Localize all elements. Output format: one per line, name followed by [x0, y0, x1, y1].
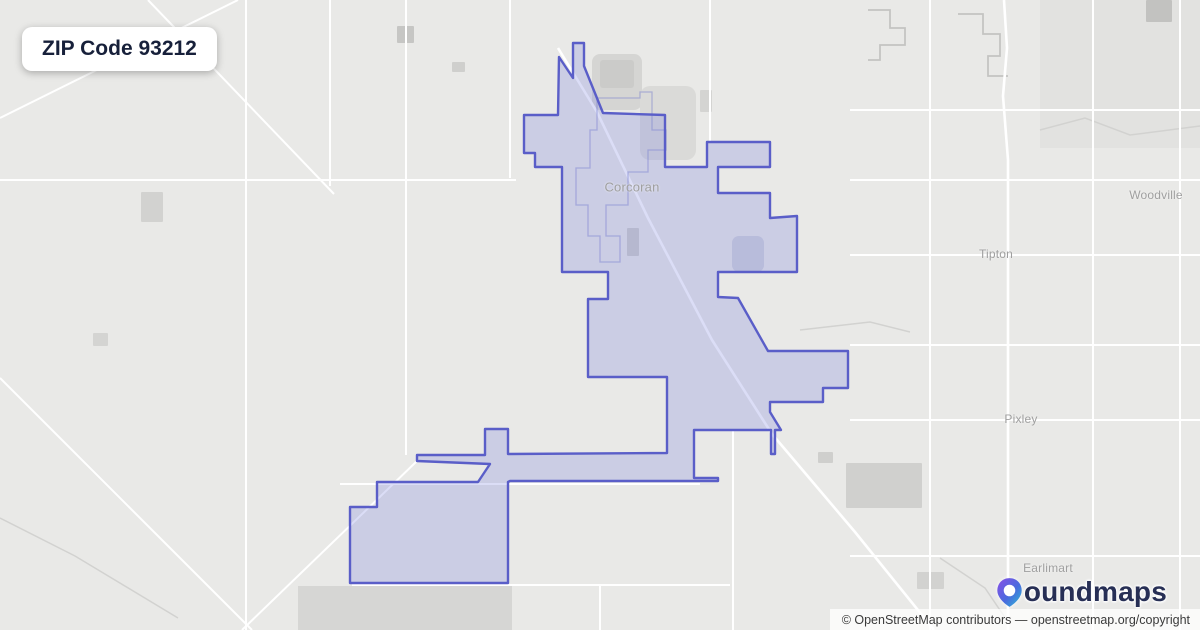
- boundmaps-logo-text: oundmaps: [1024, 576, 1167, 608]
- attribution-bar: © OpenStreetMap contributors — openstree…: [830, 609, 1200, 630]
- settlement-outline: [868, 10, 905, 60]
- attribution-text: © OpenStreetMap contributors: [842, 613, 1012, 627]
- attribution-copyright-link[interactable]: openstreetmap.org/copyright: [1031, 613, 1190, 627]
- zip-code-title-text: ZIP Code 93212: [42, 37, 197, 60]
- land-patch: [298, 586, 512, 630]
- land-patch: [1146, 0, 1172, 22]
- land-patch: [141, 192, 163, 222]
- land-patch: [93, 333, 108, 346]
- zip-boundary-polygon: [350, 43, 848, 583]
- land-patch: [600, 60, 634, 88]
- attribution-separator: —: [1011, 613, 1030, 627]
- land-patch: [818, 452, 833, 463]
- highway-line: [1003, 0, 1008, 630]
- land-patch: [452, 62, 465, 72]
- stream-line: [0, 518, 178, 618]
- boundmaps-logo: oundmaps: [996, 576, 1167, 608]
- land-patch: [846, 463, 922, 508]
- boundmaps-pin-icon: [996, 577, 1023, 608]
- settlement-outline: [958, 14, 1008, 76]
- zip-code-title: ZIP Code 93212: [22, 27, 217, 71]
- land-patch: [1040, 0, 1200, 148]
- stream-line: [800, 322, 910, 332]
- road-line-diagonal: [0, 378, 252, 630]
- map-canvas[interactable]: [0, 0, 1200, 630]
- map-screenshot: CorcoranWoodvilleTiptonPixleyEarlimart Z…: [0, 0, 1200, 630]
